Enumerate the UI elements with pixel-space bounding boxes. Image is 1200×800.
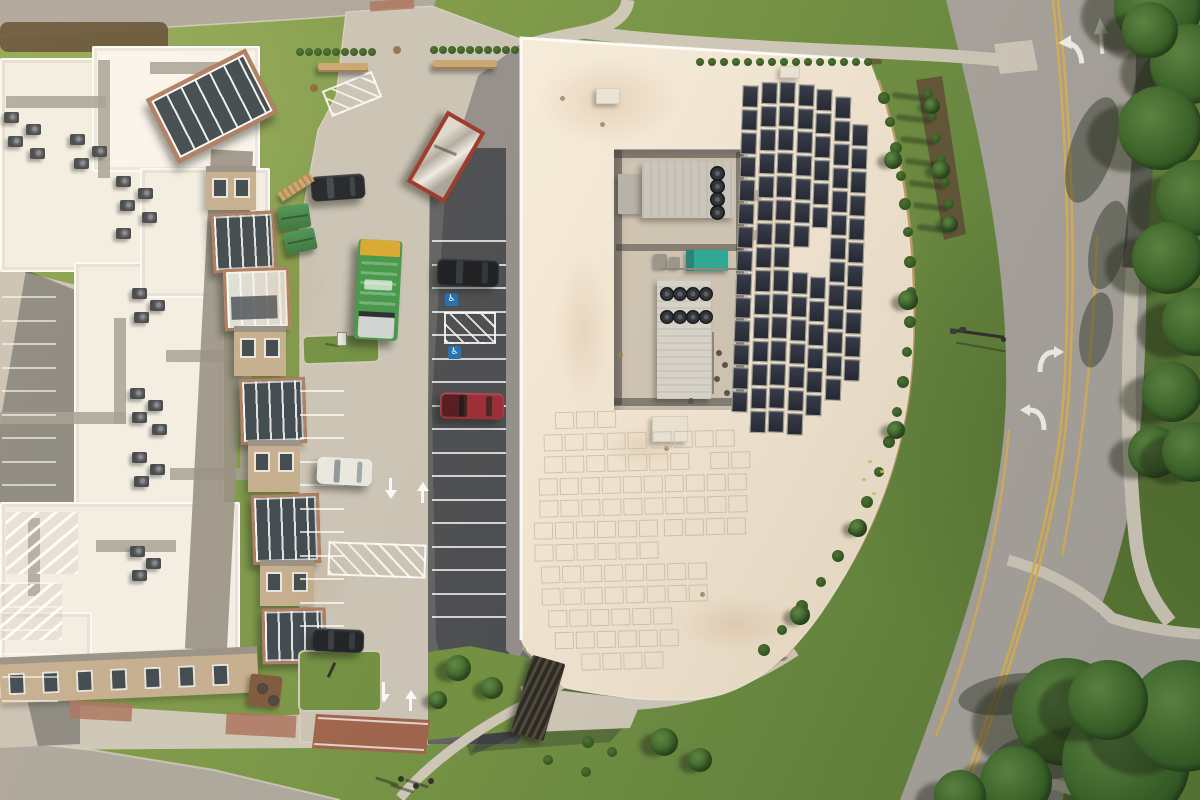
hedge-shrub [305,48,313,56]
solar-panel [646,563,665,580]
patio-table [268,695,279,706]
hedge-shrub [448,46,456,54]
solar-panel [653,607,672,624]
solar-panel [544,456,563,473]
solar-panel [665,497,684,514]
solar-panel [628,454,647,471]
lane-arrow-stem [421,491,424,503]
solar-panel [707,496,726,513]
parking-stall-line [2,343,56,345]
solar-panel [623,652,642,669]
tree [849,519,867,537]
solar-panel [665,475,684,492]
solar-panel [539,478,558,495]
solar-panel [667,585,686,602]
solar-panel [639,520,658,537]
hedge-shrub [756,58,764,66]
car-rear-window [349,632,355,649]
hedge-shrub [864,58,872,66]
parking-stall-line [2,582,58,584]
solar-panel [555,412,574,429]
lane-arrow-stem [389,478,392,490]
solar-panel [606,432,625,449]
solar-panel [562,588,581,605]
shrub [582,736,594,748]
hedge-shrub [744,58,752,66]
parking-stall-line [432,546,506,548]
light-pole-head [959,327,966,332]
solar-panel [660,629,679,646]
brick-paver-accent [225,712,296,738]
parking-stall-line [2,629,58,631]
solar-panel [644,475,663,492]
bench [318,63,368,72]
solar-panel [597,543,616,560]
solar-panel [715,429,734,446]
tree [924,98,940,114]
solar-panel [569,609,588,626]
tree [1122,2,1178,58]
solar-panel [618,520,637,537]
solar-panel [581,477,600,494]
parking-stall-line [2,367,56,369]
solar-panel [694,430,713,447]
tree [445,655,471,681]
solar-panel [706,518,725,535]
tree [688,748,712,772]
parking-stall-line [2,437,56,439]
hedge-shrub [502,46,510,54]
hedge-shrub [758,644,770,656]
solar-panel [728,495,747,512]
solar-panel [543,434,562,451]
solar-panel [688,562,707,579]
parking-stall-line [432,240,506,242]
solar-panel [604,564,623,581]
hedge-shrub [897,376,909,388]
solar-panel [685,518,704,535]
lane-arrow-up [405,690,417,699]
tree [884,151,902,169]
solar-panel [686,496,705,513]
solar-panel [583,565,602,582]
hedge-shrub [511,46,519,54]
parking-stall-line [432,428,506,430]
solar-panel [583,587,602,604]
parking-stall-line [2,676,58,678]
parking-stall-line [300,625,344,627]
solar-panel [576,543,595,560]
hedge-shrub [430,46,438,54]
solar-panel [607,454,626,471]
parking-stall-line [2,653,58,655]
solar-panel [555,522,574,539]
leaf-litter [868,460,872,463]
hedge-shrub [475,46,483,54]
hedge-shrub [816,577,826,587]
parking-stall-line [2,296,56,298]
solar-panel [555,632,574,649]
solar-panel [602,476,621,493]
car-windshield [327,631,334,650]
parking-stall-line [2,320,56,322]
tree [887,421,905,439]
solar-panel [710,452,729,469]
hedge-shrub [899,198,911,210]
hedge-shrub [828,58,836,66]
hedge-shrub [332,48,340,56]
bench [433,60,497,69]
solar-panel [623,498,642,515]
grass-island [298,650,382,712]
parking-stall-line [300,437,344,439]
tree [790,605,810,625]
red-pickup [440,392,504,419]
hedge-shrub [439,46,447,54]
shrub [581,767,591,777]
solar-panel [670,453,689,470]
black-car-south [312,628,365,653]
parking-stall-line [432,381,506,383]
parking-stall-line [432,452,506,454]
hedge-shrub [832,550,844,562]
tree [650,728,678,756]
truck-cab [358,315,395,339]
car-rear-window [481,262,488,283]
hedge-shrub [696,58,704,66]
leaf-litter [862,478,866,481]
hedge-shrub [493,46,501,54]
truck-bed [442,394,464,416]
tree [1142,362,1200,422]
solar-panel [590,609,609,626]
car-rear-window [349,177,356,196]
hedge-shrub [350,48,358,56]
hedge-shrub [708,58,716,66]
aerial-photo-commercial-building-solar-roof: ♿♿ [0,0,1200,800]
solar-panel [585,433,604,450]
solar-panel [664,519,683,536]
solar-panel [564,433,583,450]
solar-panel [625,564,644,581]
shrub [607,747,617,757]
shrub [543,755,553,765]
car-windshield [455,261,463,284]
solar-panel [623,476,642,493]
hedge-shrub [840,58,848,66]
solar-panel [534,544,553,561]
solar-panel [576,521,595,538]
truck-logo [364,279,392,290]
solar-panel [541,566,560,583]
light-pole-head [950,329,957,334]
drain-cover [393,46,401,54]
hedge-shrub [804,58,812,66]
parking-stall-line [432,358,506,360]
car-windshield [333,459,341,482]
tree [481,677,503,699]
parking-stall-line [432,475,506,477]
hedge-shrub [368,48,376,56]
leaf-litter [872,492,876,495]
truck-hopper [360,239,401,257]
hedge-shrub [323,48,331,56]
hedge-shrub [341,48,349,56]
person [428,778,434,784]
patio-table [257,683,268,694]
hedge-shrub [792,58,800,66]
solar-panel [597,631,616,648]
lane-arrow-down [385,490,397,499]
leaf-litter [880,470,884,473]
solar-array-south [0,0,1200,800]
solar-panel [560,478,579,495]
dumpster-lid-line [287,237,314,245]
solar-panel [604,586,623,603]
hedge-shrub [816,58,824,66]
solar-panel [539,500,558,517]
car-windshield [326,177,334,198]
parking-sign [337,332,347,346]
solar-panel [618,630,637,647]
parking-stall-line [432,616,506,618]
solar-panel [597,411,616,428]
objects-layer: ♿♿ [0,0,1200,800]
solar-panel [565,455,584,472]
person [398,776,404,782]
hedge-shrub [466,46,474,54]
dumpster [277,203,311,231]
hedge-shrub [904,256,916,268]
solar-panel [534,522,553,539]
parking-stall-line [300,531,344,533]
no-parking-hatch [444,312,496,344]
solar-panel [625,586,644,603]
solar-panel [581,499,600,516]
parking-stall-line [432,499,506,501]
parking-stall-line [2,606,58,608]
black-car-north [310,173,366,202]
parking-stall-line [2,461,56,463]
dumpster-lid-line [281,214,308,220]
white-car [316,457,372,487]
parking-stall-line [432,593,506,595]
solar-panel [548,610,567,627]
parking-stall-line [432,569,506,571]
hedge-shrub [861,496,873,508]
solar-panel [581,653,600,670]
solar-panel [576,411,595,428]
solar-panel [562,566,581,583]
solar-panel [602,653,621,670]
parking-stall-line [2,700,58,702]
hedge-shrub [484,46,492,54]
solar-panel [560,500,579,517]
tree [898,290,918,310]
solar-panel [542,588,561,605]
solar-panel [586,455,605,472]
solar-panel [731,451,750,468]
hedge-shrub [852,58,860,66]
hedge-shrub [732,58,740,66]
solar-panel [576,631,595,648]
light-pole-base [1001,337,1006,342]
parking-stall-line [300,602,344,604]
solar-panel [597,521,616,538]
hedge-shrub [892,407,902,417]
solar-panel [618,542,637,559]
brick-paver-accent [70,700,133,721]
parking-stall-line [2,484,56,486]
solar-panel [688,584,707,601]
solar-panel [627,432,646,449]
hedge-shrub [878,92,890,104]
parking-stall-line [2,414,56,416]
mulch-shrub [931,133,941,143]
parking-stall-line [300,390,344,392]
lane-arrow-up [417,482,429,491]
solar-panel [686,474,705,491]
car-rear-window [356,462,363,483]
tree [942,216,958,232]
solar-panel [646,585,665,602]
tree [1068,660,1148,740]
solar-panel [644,651,663,668]
solar-panel [727,517,746,534]
hedge-shrub [314,48,322,56]
hedge-shrub [720,58,728,66]
parking-stall-line [300,508,344,510]
drain-cover [310,84,318,92]
lane-arrow-stem [409,699,412,711]
handicap-symbol: ♿ [445,293,458,306]
solar-panel [649,453,668,470]
parking-stall-line [432,522,506,524]
parking-stall-line [432,287,506,289]
parking-stall-line [2,390,56,392]
solar-panel [707,474,726,491]
no-parking-hatch [327,541,426,578]
solar-panel [639,542,658,559]
tree [1132,222,1200,294]
hedge-shrub [903,227,913,237]
solar-panel [667,563,686,580]
hedge-shrub [457,46,465,54]
solar-panel [673,431,692,448]
tree [1118,86,1200,170]
mulch-shrub [944,199,954,209]
solar-panel [555,544,574,561]
solar-panel [639,630,658,647]
hedge-shrub [896,171,906,181]
hedge-shrub [768,58,776,66]
parking-stall-line [300,414,344,416]
hedge-shrub [904,316,916,328]
solar-panel [632,608,651,625]
hedge-shrub [777,625,787,635]
car-rear-window [486,396,493,416]
solar-panel [611,608,630,625]
garbage-truck [353,239,402,341]
hedge-shrub [780,58,788,66]
black-suv [437,258,500,287]
debris-line [434,144,457,156]
hedge-shrub [885,117,895,127]
handicap-symbol: ♿ [448,346,461,359]
solar-panel [728,473,747,490]
solar-panel [644,497,663,514]
hedge-shrub [359,48,367,56]
solar-panel [602,498,621,515]
hedge-shrub [902,347,912,357]
tree [932,161,950,179]
tree [429,691,447,709]
parking-stall-line [300,578,344,580]
solar-panel [652,431,671,448]
hedge-shrub [296,48,304,56]
